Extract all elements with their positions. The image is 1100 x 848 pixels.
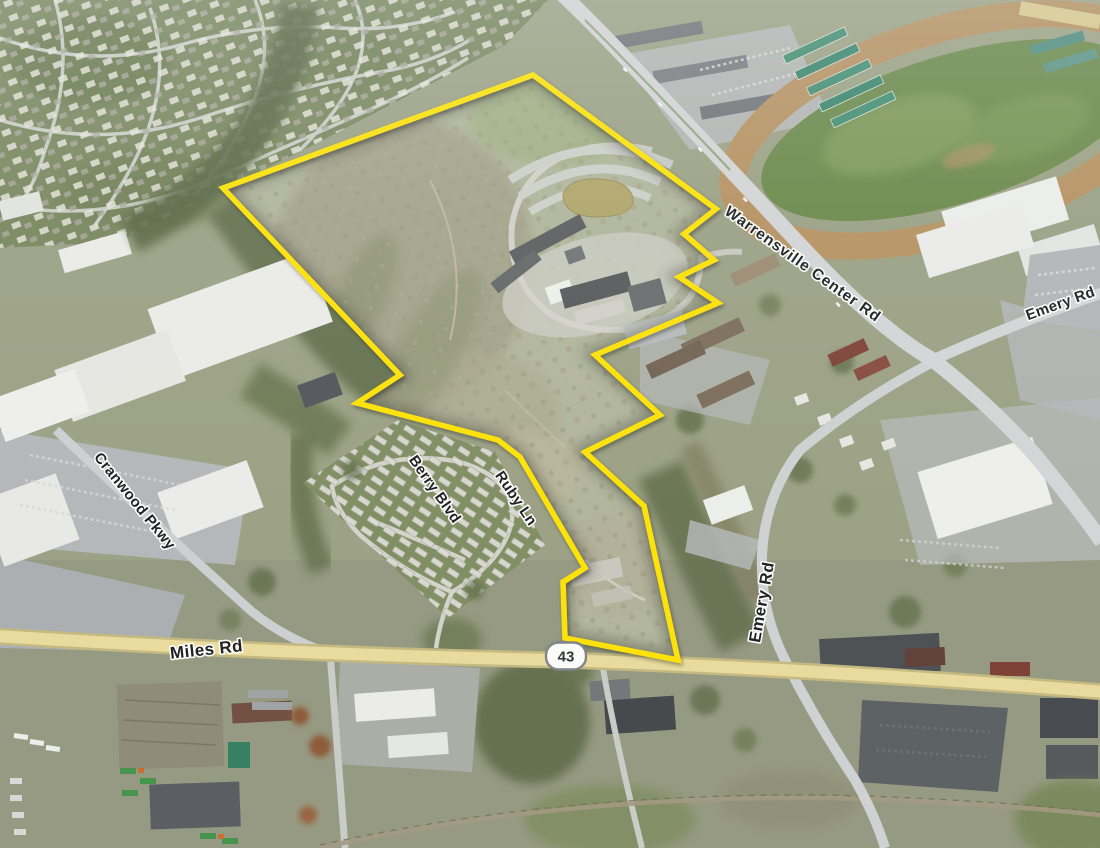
aerial-map[interactable]: 43 Warrensville Center Rd Emery Rd Cranw… <box>0 0 1100 848</box>
aerial-map-canvas: 43 Warrensville Center Rd Emery Rd Cranw… <box>0 0 1100 848</box>
desaturation-veil <box>0 0 1100 848</box>
